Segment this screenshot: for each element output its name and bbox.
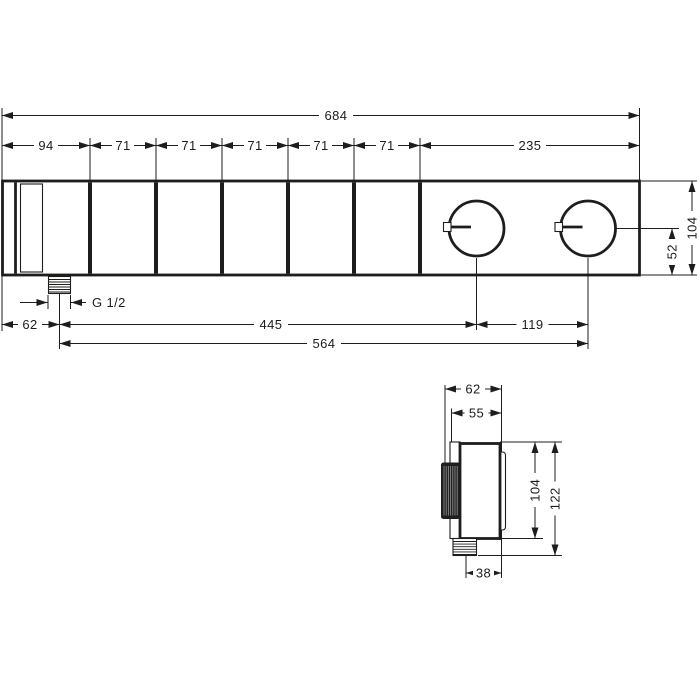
dim-seg-71-label-2: 71 — [181, 138, 196, 153]
dim-445-label: 445 — [260, 317, 283, 332]
dim-seg-94-label: 94 — [38, 138, 53, 153]
knob-2-notch — [555, 223, 563, 232]
body-outline — [3, 181, 640, 275]
knob-2-circle — [561, 201, 616, 256]
top-view: 684 94 71 71 71 71 71 235 — [2, 108, 699, 351]
dim-564-label: 564 — [313, 336, 336, 351]
dim-55-label: 55 — [469, 406, 484, 421]
dim-52-label: 52 — [664, 244, 679, 259]
dim-overall-width: 684 — [2, 108, 640, 123]
dim-height-total: 122 — [547, 442, 562, 556]
module-body — [3, 181, 640, 294]
dim-62-label-top-view: 62 — [22, 317, 37, 332]
dim-depth-total: 62 — [445, 382, 502, 397]
dim-seg-71-label-5: 71 — [379, 138, 394, 153]
dim-38-label: 38 — [476, 566, 491, 581]
dim-seg-71-label-3: 71 — [247, 138, 262, 153]
dim-segment-row: 94 71 71 71 71 71 235 — [2, 138, 640, 153]
dim-seg-71-label-1: 71 — [115, 138, 130, 153]
end-plate — [21, 184, 43, 272]
body-profile — [460, 444, 500, 539]
inlet-nipple-side-view — [453, 539, 477, 556]
dim-62-label-side-view: 62 — [465, 382, 480, 397]
dim-height-body: 104 — [527, 442, 542, 539]
dim-119-label: 119 — [522, 317, 544, 332]
knob-1-notch — [444, 223, 452, 232]
side-view: 62 55 — [442, 382, 563, 581]
dim-seg-71-label-4: 71 — [313, 138, 328, 153]
dim-bottom-row-2: 564 — [60, 336, 589, 351]
dim-inlet-to-back: 38 — [466, 556, 502, 581]
dim-104-label-top-view: 104 — [684, 217, 699, 240]
inlet-nipple-top-view — [49, 277, 71, 294]
thread-size-label: G 1/2 — [92, 295, 126, 310]
dim-overall-width-label: 684 — [325, 108, 348, 123]
thread-annotation: G 1/2 — [20, 295, 126, 310]
dim-depth-body: 55 — [452, 406, 502, 421]
dim-122-label: 122 — [547, 487, 562, 510]
dim-seg-235-label: 235 — [519, 138, 542, 153]
dimensional-drawing: 684 94 71 71 71 71 71 235 — [0, 0, 700, 700]
side-profile — [442, 442, 506, 556]
dim-bottom-row-1: 62 445 119 — [2, 317, 588, 332]
knob-1-circle — [449, 201, 504, 256]
knob-profile — [442, 463, 460, 519]
technical-drawing-page: 684 94 71 71 71 71 71 235 — [0, 0, 700, 700]
dim-104-label-side-view: 104 — [527, 479, 542, 502]
